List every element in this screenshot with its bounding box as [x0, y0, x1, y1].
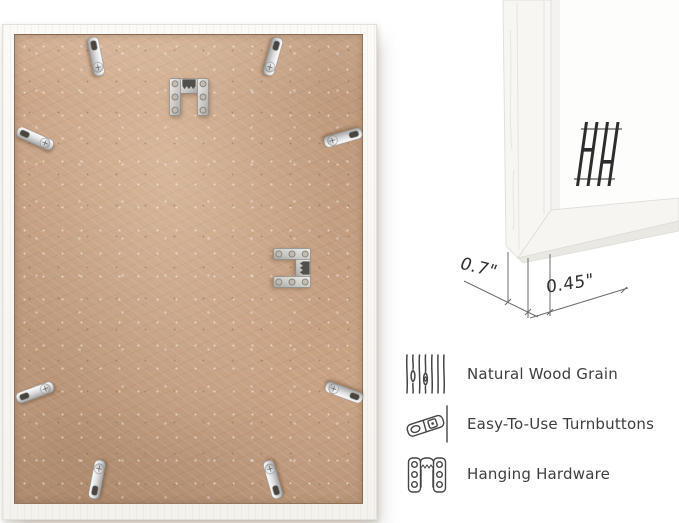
product-infographic: 0.7" 0.45"	[0, 0, 679, 523]
frame-corner-detail: 0.7" 0.45"	[440, 0, 679, 340]
sawtooth-hanger-hardware-icon	[169, 78, 209, 116]
feature-label: Natural Wood Grain	[467, 365, 618, 383]
wood-grain-icon	[402, 354, 452, 394]
feature-row-hanging-hardware: Hanging Hardware	[402, 452, 672, 496]
feature-row-wood-grain: Natural Wood Grain	[402, 352, 672, 396]
feature-list: Natural Wood Grain Easy-To-Use Turnbutto…	[402, 352, 672, 496]
feature-label: Easy-To-Use Turnbuttons	[467, 415, 654, 433]
hanging-hardware-icon	[402, 453, 452, 495]
turnbutton-icon	[402, 405, 452, 443]
feature-row-turnbuttons: Easy-To-Use Turnbuttons	[402, 402, 672, 446]
sawtooth-hanger-hardware-icon	[273, 248, 311, 288]
feature-label: Hanging Hardware	[467, 465, 610, 483]
frame-back-photo	[2, 24, 377, 520]
